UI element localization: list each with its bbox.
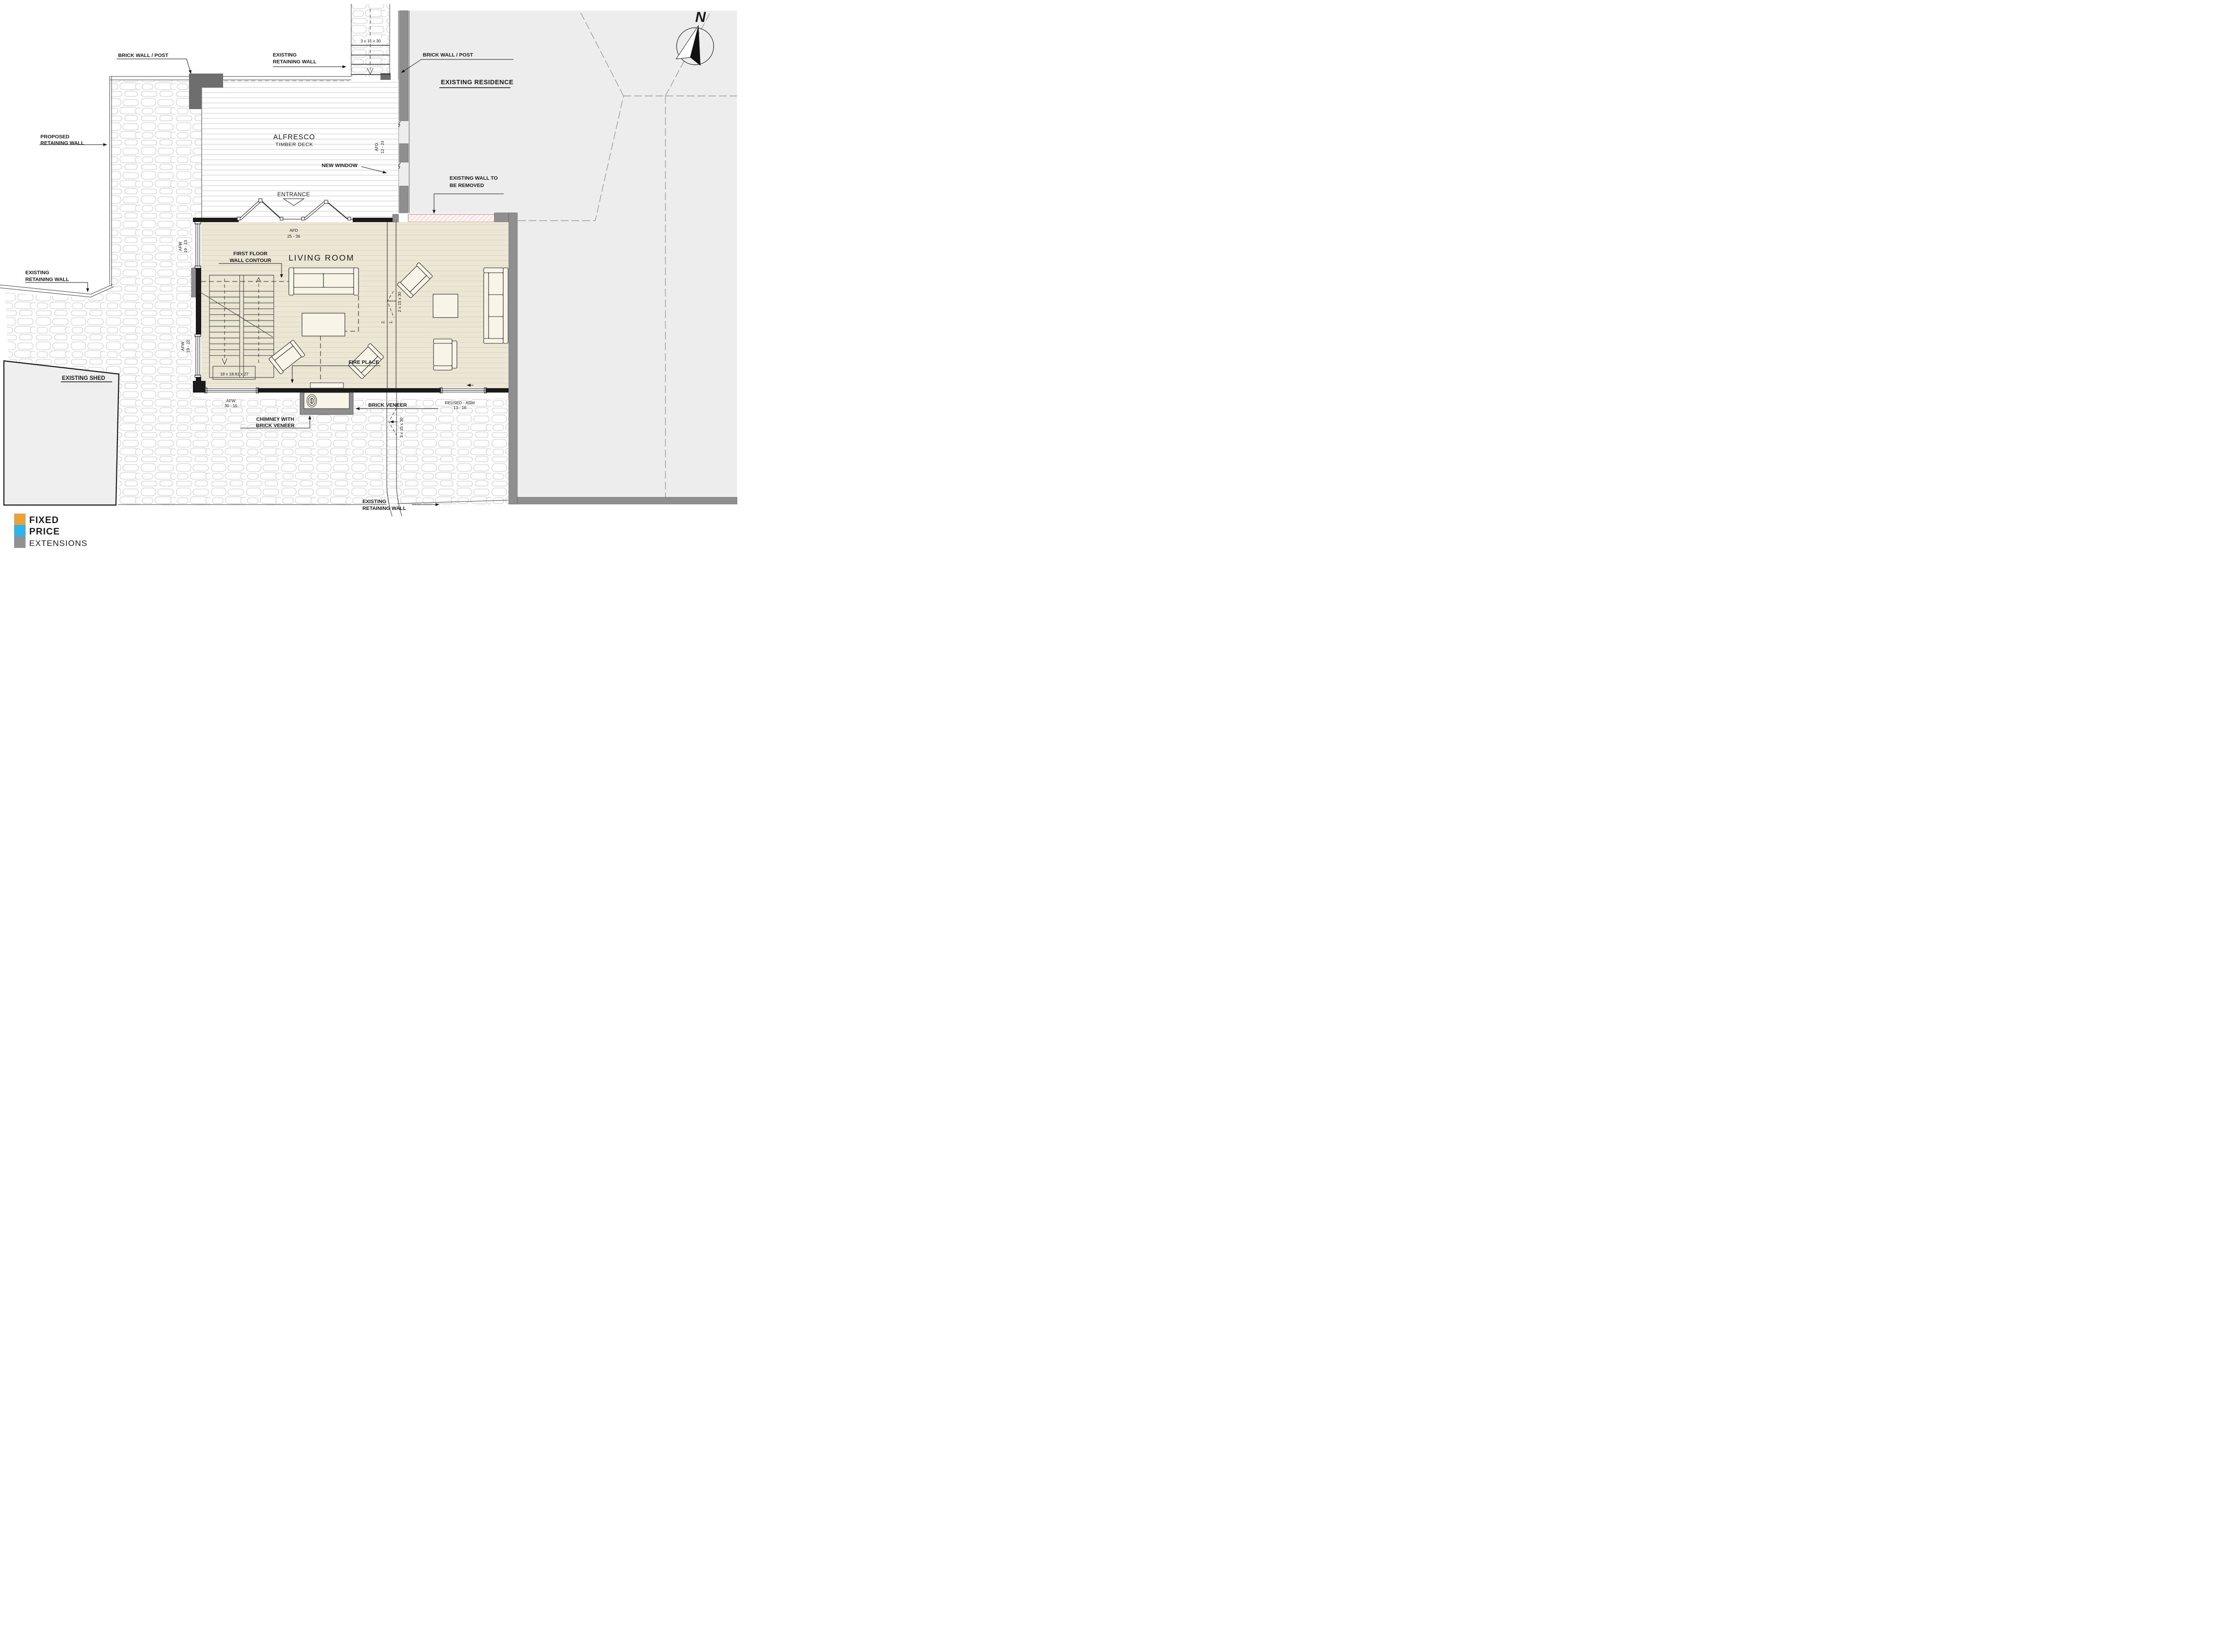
label-existing-retaining-top-1: EXISTING: [273, 52, 297, 58]
floor-plan-svg: BRICK WALL / POST EXISTING RETAINING WAL…: [0, 0, 753, 562]
label-alfresco: ALFRESCO: [273, 133, 315, 141]
residence-south-wall: [509, 497, 737, 504]
sofa-main: [289, 268, 359, 295]
label-afd-25-36-b: 25 - 36: [287, 234, 301, 239]
logo-square-orange: [14, 514, 26, 526]
label-first-floor-2: WALL CONTOUR: [229, 258, 271, 263]
label-brick-wall-post-left: BRICK WALL / POST: [118, 53, 169, 58]
label-afd-25-36-a: AFD: [290, 228, 298, 233]
label-reused-1: REUSED - ASW: [445, 400, 475, 405]
label-brick-veneer: BRICK VENEER: [368, 402, 407, 408]
armchair-4: [434, 339, 457, 370]
floor-plan-page: BRICK WALL / POST EXISTING RETAINING WAL…: [0, 0, 753, 562]
label-step-1: 1.: [388, 320, 393, 323]
removed-wall: [408, 214, 494, 222]
label-removed-1: EXISTING WALL TO: [450, 175, 498, 181]
logo-square-gray: [14, 537, 26, 548]
brick-post-left: [189, 74, 223, 88]
label-afd-12-24-b: 12 - 24: [380, 140, 385, 153]
label-timber-deck: TIMBER DECK: [275, 142, 313, 148]
label-step-2: 2.: [380, 320, 385, 323]
flue-icon: [307, 394, 317, 407]
label-afw-19-13-b: 19 - 13: [183, 240, 188, 253]
label-afw-19-22-b: 19 - 22: [186, 339, 190, 353]
logo-square-blue: [14, 525, 26, 537]
label-existing-retaining-bottom-2: RETAINING WALL: [362, 506, 406, 511]
label-steps-bottom: 3 x 15 x 30: [399, 417, 404, 438]
label-afw-19-13-a: AFW: [178, 242, 183, 251]
label-afw-30-15-b: 30 - 15: [225, 403, 238, 408]
window-w3: [205, 388, 259, 393]
label-reused-2: 13 - 16: [454, 405, 467, 410]
logo-text-price: PRICE: [29, 527, 60, 537]
label-chimney-2: BRICK VENEER: [256, 423, 295, 429]
label-steps-top: 3 x 15 x 30: [356, 38, 385, 43]
label-new-window: NEW WINDOW: [322, 163, 358, 169]
label-existing-retaining-bottom-1: EXISTING: [362, 499, 386, 505]
label-afw-19-22-a: AFW: [180, 342, 185, 351]
stone-left-band: [111, 80, 202, 292]
logo-text-extensions: EXTENSIONS: [29, 539, 88, 548]
logo-text-fixed: FIXED: [29, 515, 59, 526]
label-entrance: ENTRANCE: [277, 192, 310, 198]
label-existing-retaining-left-1: EXISTING: [25, 270, 49, 276]
label-existing-shed: EXISTING SHED: [62, 375, 105, 381]
label-brick-wall-post-right: BRICK WALL / POST: [423, 52, 473, 58]
brick-post-right: [380, 73, 391, 80]
existing-shed: [4, 361, 119, 505]
label-proposed-1: PROPOSED: [40, 134, 70, 140]
svg-text:3 x 15 x 30: 3 x 15 x 30: [360, 38, 381, 43]
logo: FIXED PRICE EXTENSIONS: [14, 514, 88, 548]
label-afd-12-24-a: AFD: [374, 143, 379, 151]
window-w1: [195, 222, 201, 268]
label-proposed-2: RETAINING WALL: [40, 140, 84, 146]
label-fire-place: FIRE PLACE: [349, 359, 379, 365]
label-first-floor-1: FIRST FLOOR: [233, 251, 267, 257]
label-afw-30-15-a: AFW: [227, 398, 236, 403]
label-living-room: LIVING ROOM: [288, 253, 354, 263]
living-room-east-wall: [509, 213, 517, 504]
sofa-right: [484, 268, 508, 343]
label-2x15x30: 2 x 15 x 30: [397, 292, 402, 312]
hearth: [310, 383, 343, 388]
coffee-table: [302, 313, 345, 336]
side-table: [433, 294, 458, 318]
window-w2: [195, 334, 201, 377]
label-stair-dim: 18 x 18.61 x 27: [220, 372, 248, 376]
label-removed-2: BE REMOVED: [450, 183, 484, 188]
label-existing-residence: EXISTING RESIDENCE: [441, 78, 513, 86]
label-existing-retaining-top-2: RETAINING WALL: [273, 59, 317, 65]
label-chimney-1: CHIMNEY WITH: [256, 416, 294, 422]
north-label: N: [695, 9, 706, 25]
label-existing-retaining-left-2: RETAINING WALL: [25, 277, 69, 282]
residence-corner-wall: [494, 213, 509, 222]
